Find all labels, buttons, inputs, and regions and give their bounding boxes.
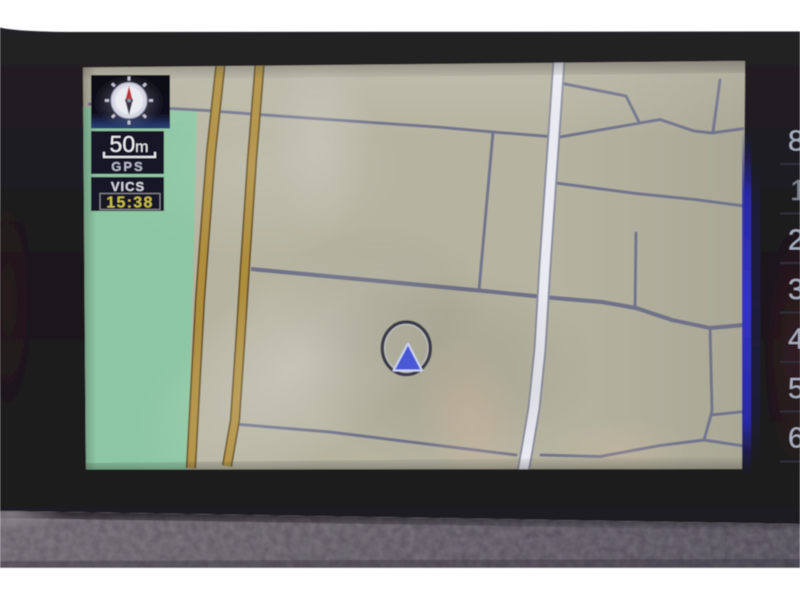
svg-text:15:38: 15:38	[106, 195, 153, 212]
svg-text:2: 2	[788, 225, 800, 257]
svg-text:3: 3	[788, 274, 800, 306]
svg-text:6: 6	[788, 423, 800, 455]
svg-text:1: 1	[790, 175, 800, 207]
svg-text:5: 5	[788, 373, 800, 405]
svg-text:8: 8	[788, 126, 800, 158]
svg-text:GPS: GPS	[111, 159, 144, 174]
svg-text:4: 4	[788, 324, 800, 356]
svg-text:VICS: VICS	[111, 179, 145, 194]
